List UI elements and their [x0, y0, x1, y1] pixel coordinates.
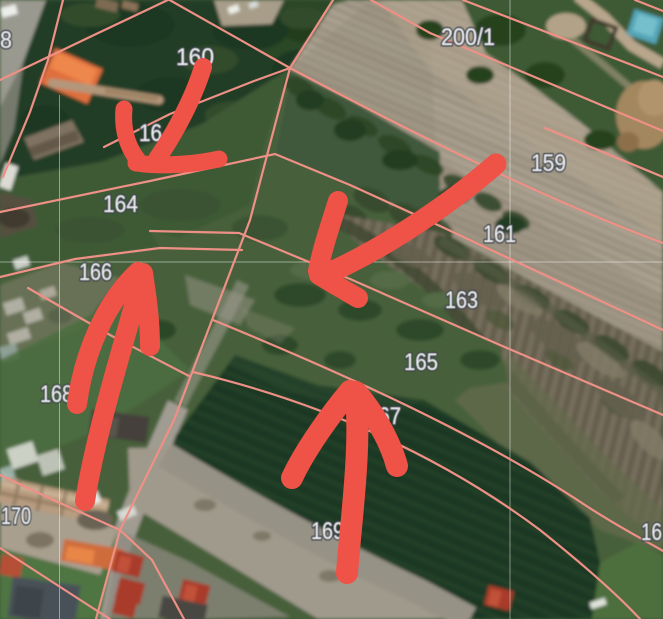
svg-text:166: 166 — [79, 259, 112, 286]
svg-text:170: 170 — [1, 503, 31, 530]
svg-text:161: 161 — [483, 221, 516, 248]
svg-text:200/1: 200/1 — [441, 24, 495, 51]
svg-text:159: 159 — [531, 150, 566, 177]
svg-text:16: 16 — [641, 519, 662, 546]
svg-text:8: 8 — [0, 27, 12, 54]
svg-text:163: 163 — [445, 287, 478, 314]
svg-text:165: 165 — [404, 349, 438, 376]
svg-text:164: 164 — [103, 191, 138, 218]
